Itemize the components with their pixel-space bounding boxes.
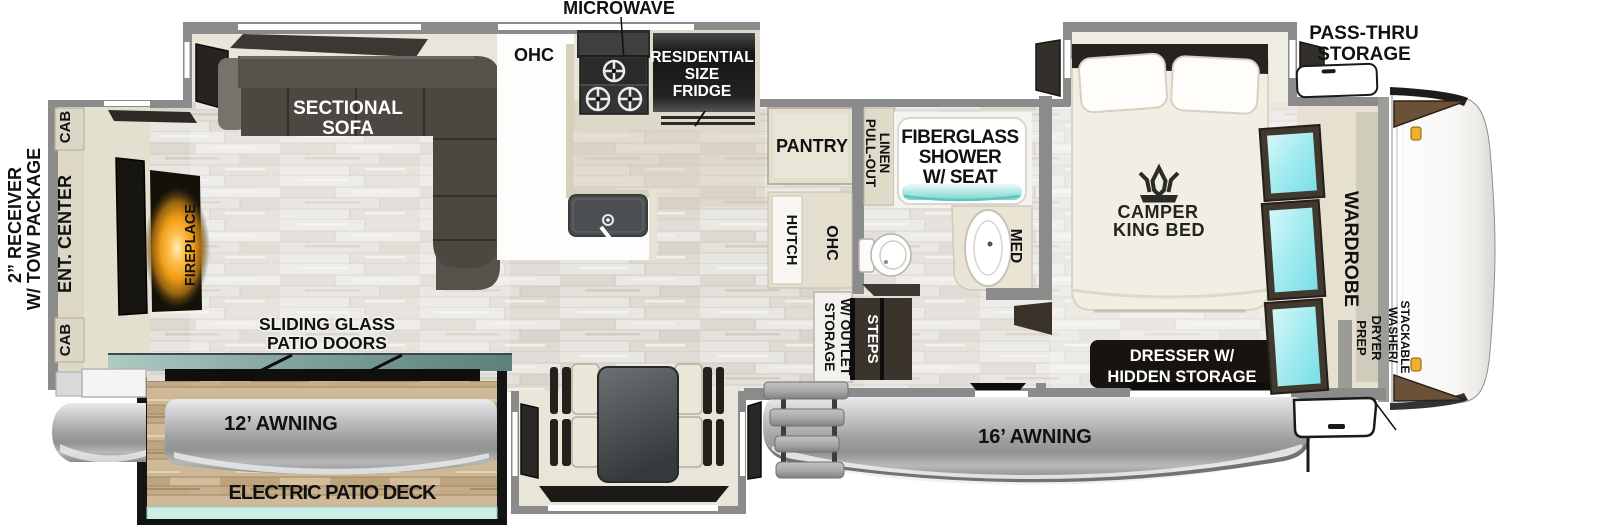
svg-text:WARDROBE: WARDROBE: [1340, 191, 1362, 307]
svg-text:DRESSER W/: DRESSER W/: [1130, 347, 1235, 365]
svg-text:OHC: OHC: [823, 225, 840, 261]
svg-text:ENT. CENTER: ENT. CENTER: [55, 175, 75, 293]
svg-text:SOFA: SOFA: [322, 118, 374, 139]
svg-text:MICROWAVE: MICROWAVE: [563, 0, 675, 18]
svg-text:PASS-THRU: PASS-THRU: [1309, 23, 1418, 44]
svg-text:CAMPER: CAMPER: [1117, 202, 1198, 222]
svg-text:STEPS: STEPS: [864, 314, 881, 363]
svg-text:FIREPLACE: FIREPLACE: [183, 204, 199, 287]
svg-text:PANTRY: PANTRY: [776, 136, 848, 156]
svg-text:SLIDING GLASS: SLIDING GLASS: [259, 314, 395, 334]
svg-text:MED: MED: [1007, 229, 1024, 263]
svg-text:STORAGE: STORAGE: [822, 303, 838, 372]
svg-text:FRIDGE: FRIDGE: [673, 83, 732, 100]
svg-text:16’ AWNING: 16’ AWNING: [978, 426, 1092, 448]
svg-text:STORAGE: STORAGE: [1317, 44, 1411, 65]
svg-text:W/ TOW PACKAGE: W/ TOW PACKAGE: [24, 148, 44, 310]
svg-text:PULL-OUT: PULL-OUT: [863, 119, 878, 188]
svg-text:12’ AWNING: 12’ AWNING: [224, 413, 338, 435]
svg-text:2” RECEIVER: 2” RECEIVER: [5, 167, 25, 283]
svg-text:FIBERGLASS: FIBERGLASS: [901, 127, 1018, 148]
svg-text:SIZE: SIZE: [685, 66, 719, 83]
svg-text:PATIO DOORS: PATIO DOORS: [267, 333, 387, 353]
svg-text:ELECTRIC PATIO DECK: ELECTRIC PATIO DECK: [229, 482, 437, 504]
svg-text:SHOWER: SHOWER: [919, 147, 1002, 168]
svg-text:CAB: CAB: [57, 324, 74, 357]
svg-text:SECTIONAL: SECTIONAL: [293, 98, 403, 119]
svg-text:PREP: PREP: [1354, 320, 1369, 356]
svg-text:HUTCH: HUTCH: [783, 215, 799, 266]
svg-text:STACKABLE: STACKABLE: [1398, 300, 1412, 373]
svg-text:LINEN: LINEN: [877, 133, 892, 174]
svg-text:KING BED: KING BED: [1113, 220, 1205, 240]
svg-text:W/ SEAT: W/ SEAT: [923, 167, 998, 188]
svg-text:RESIDENTIAL: RESIDENTIAL: [650, 49, 753, 66]
svg-text:WASHER/: WASHER/: [1386, 307, 1400, 364]
svg-text:CAB: CAB: [57, 111, 74, 144]
svg-text:DRYER: DRYER: [1369, 315, 1384, 361]
svg-text:OHC: OHC: [514, 45, 554, 65]
